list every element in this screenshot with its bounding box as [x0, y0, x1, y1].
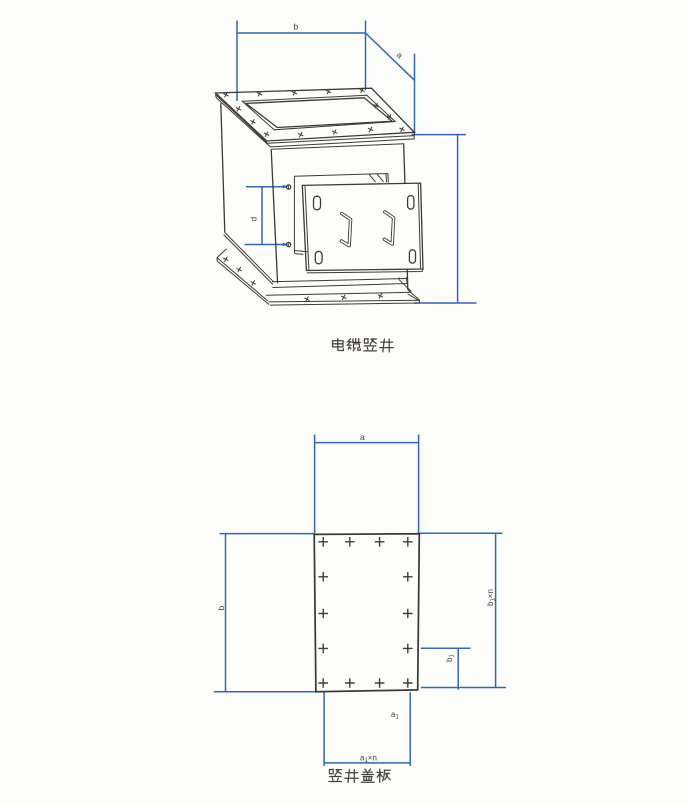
- svg-text:b1×n: b1×n: [486, 589, 497, 606]
- svg-text:a: a: [360, 432, 365, 442]
- svg-text:a1×n: a1×n: [360, 754, 377, 765]
- svg-text:d: d: [249, 217, 259, 222]
- svg-text:b: b: [294, 22, 299, 32]
- svg-text:b: b: [216, 606, 226, 611]
